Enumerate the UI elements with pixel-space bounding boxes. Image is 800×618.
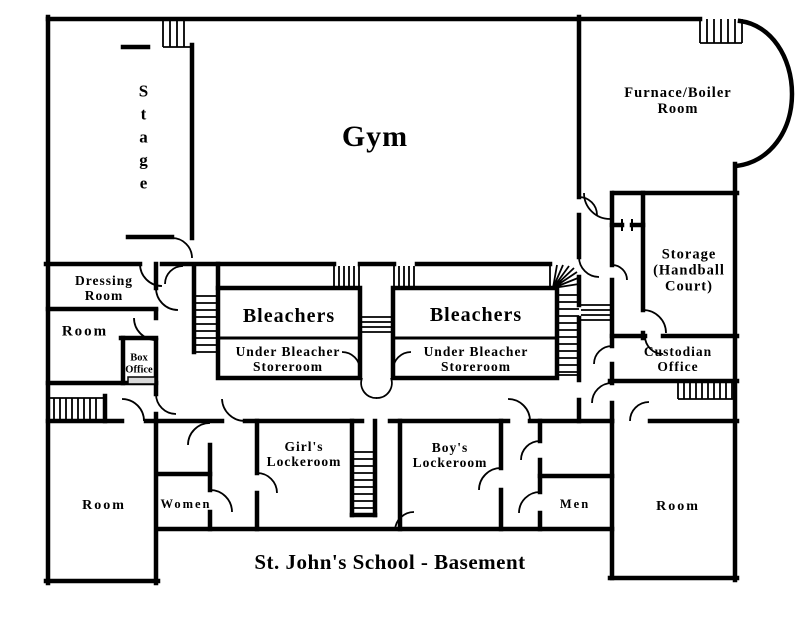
room-label-bleachers-right: Bleachers bbox=[430, 304, 522, 326]
stage-letter: a bbox=[139, 126, 149, 149]
room-label-storeroom-right: Under Bleacher Storeroom bbox=[424, 344, 529, 374]
room-label-girls-lockeroom: Girl's Lockeroom bbox=[267, 439, 342, 469]
stair-main-east bbox=[557, 295, 579, 375]
page-title: St. John's School - Basement bbox=[254, 551, 525, 575]
box-office-window bbox=[128, 377, 155, 384]
room-label-boys-lockeroom: Boy's Lockeroom bbox=[413, 440, 488, 470]
room-label-furnace: Furnace/Boiler Room bbox=[624, 85, 731, 117]
stair-landing bbox=[581, 305, 612, 320]
stair-west bbox=[194, 296, 218, 352]
room-label-room-mid-left: Room bbox=[62, 324, 108, 341]
stage-letter: S bbox=[139, 80, 149, 103]
floor-plan: S t a g e Gym Furnace/Boiler Room Dressi… bbox=[0, 0, 800, 618]
stair-fan bbox=[550, 264, 579, 288]
room-label-custodian: Custodian Office bbox=[644, 344, 712, 374]
stage-letter: g bbox=[139, 149, 149, 172]
stair-gym-south-right bbox=[394, 266, 414, 288]
room-label-room-bottom-right: Room bbox=[656, 499, 700, 515]
room-label-dressing: Dressing Room bbox=[75, 273, 133, 303]
stair-stage-top bbox=[163, 19, 192, 47]
stair-gym-south-left bbox=[334, 266, 359, 288]
room-label-gym: Gym bbox=[342, 120, 408, 154]
stage-letter: t bbox=[141, 103, 148, 126]
stair-furnace-top bbox=[700, 19, 742, 43]
stair-girls bbox=[354, 452, 375, 508]
stair-center bbox=[362, 317, 391, 332]
room-label-men: Men bbox=[560, 497, 590, 511]
wall-furnace-bulge bbox=[736, 21, 792, 166]
room-label-storeroom-left: Under Bleacher Storeroom bbox=[236, 344, 341, 374]
room-label-room-bottom-left: Room bbox=[82, 498, 126, 514]
stage-letter: e bbox=[140, 172, 149, 195]
stair-custodian bbox=[678, 383, 735, 399]
room-label-stage: S t a g e bbox=[139, 80, 149, 195]
room-label-women: Women bbox=[161, 497, 212, 511]
room-label-storage: Storage (Handball Court) bbox=[653, 247, 725, 296]
room-label-bleachers-left: Bleachers bbox=[243, 305, 335, 327]
room-label-box-office: Box Office bbox=[125, 352, 152, 376]
stair-bottom-left bbox=[48, 398, 103, 421]
